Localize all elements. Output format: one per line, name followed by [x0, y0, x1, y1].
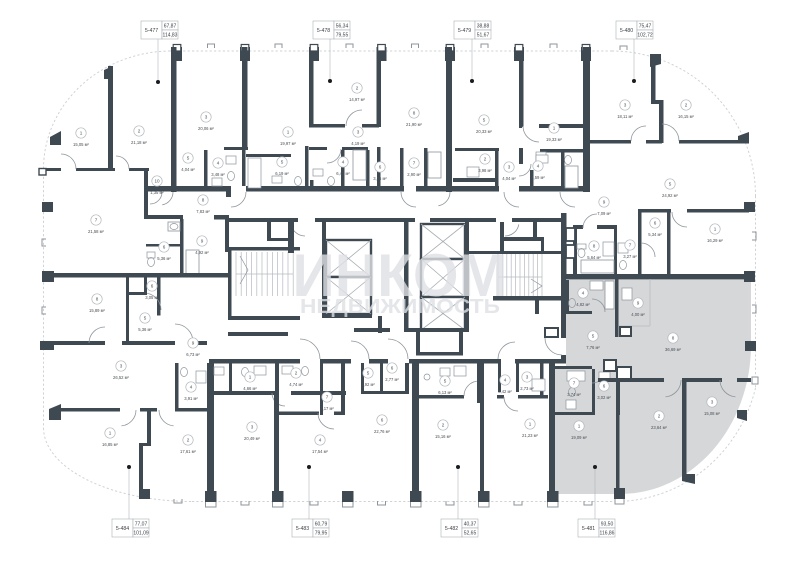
svg-text:2: 2 [295, 371, 298, 376]
svg-text:1: 1 [578, 424, 581, 429]
svg-text:4,66 м²: 4,66 м² [243, 386, 257, 391]
svg-text:5: 5 [669, 182, 672, 187]
svg-text:1: 1 [714, 227, 717, 232]
svg-text:17,61 м²: 17,61 м² [180, 449, 197, 454]
svg-text:4: 4 [190, 385, 193, 390]
svg-text:3: 3 [526, 375, 529, 380]
svg-text:2: 2 [685, 103, 688, 108]
svg-text:3: 3 [711, 400, 714, 405]
svg-text:3,98 м²: 3,98 м² [478, 168, 492, 173]
svg-text:7: 7 [629, 243, 632, 248]
svg-text:18,11 м²: 18,11 м² [617, 114, 633, 119]
svg-text:9: 9 [637, 301, 640, 306]
svg-text:15,89 м²: 15,89 м² [89, 308, 106, 313]
svg-text:4: 4 [537, 164, 540, 169]
svg-text:15,08 м²: 15,08 м² [704, 411, 721, 416]
svg-text:60,79: 60,79 [315, 522, 328, 528]
svg-text:56,34: 56,34 [336, 24, 349, 30]
svg-text:6,73 м²: 6,73 м² [186, 352, 200, 357]
svg-text:1: 1 [80, 131, 83, 136]
svg-text:4,92 м²: 4,92 м² [195, 250, 209, 255]
svg-text:10: 10 [154, 179, 160, 184]
svg-text:21,23 м²: 21,23 м² [522, 433, 539, 438]
svg-text:2,90 м²: 2,90 м² [407, 172, 421, 177]
svg-text:5-481: 5-481 [582, 526, 595, 532]
svg-text:5: 5 [592, 334, 595, 339]
svg-text:2,77 м²: 2,77 м² [385, 377, 399, 382]
svg-text:5-484: 5-484 [116, 526, 129, 532]
svg-text:3,27 м²: 3,27 м² [623, 254, 637, 259]
svg-text:40,37: 40,37 [464, 522, 477, 528]
svg-text:23,64 м²: 23,64 м² [651, 425, 668, 430]
svg-text:5: 5 [367, 371, 370, 376]
svg-text:7: 7 [413, 161, 416, 166]
svg-text:4: 4 [319, 438, 322, 443]
svg-text:3: 3 [251, 425, 254, 430]
svg-text:5: 5 [444, 379, 447, 384]
svg-text:8: 8 [413, 111, 416, 116]
svg-text:4,59 м²: 4,59 м² [531, 175, 545, 180]
svg-text:4,04 м²: 4,04 м² [181, 167, 195, 172]
svg-text:7: 7 [326, 395, 329, 400]
svg-text:93,50: 93,50 [601, 522, 614, 528]
svg-text:114,83: 114,83 [163, 33, 178, 39]
svg-text:9: 9 [603, 200, 606, 205]
svg-text:5-480: 5-480 [620, 28, 633, 34]
svg-text:НЕДВИЖИМОСТЬ: НЕДВИЖИМОСТЬ [300, 296, 500, 318]
svg-text:4,00 м²: 4,00 м² [631, 312, 645, 317]
svg-text:1: 1 [109, 431, 112, 436]
svg-text:24,92 м²: 24,92 м² [662, 193, 679, 198]
svg-text:21,58 м²: 21,58 м² [88, 229, 105, 234]
svg-text:20,49 м²: 20,49 м² [244, 436, 261, 441]
svg-text:14,97 м²: 14,97 м² [349, 97, 366, 102]
svg-text:16,15 м²: 16,15 м² [678, 114, 695, 119]
svg-text:5-477: 5-477 [145, 28, 158, 34]
svg-text:9: 9 [201, 239, 204, 244]
svg-text:52,65: 52,65 [464, 531, 477, 537]
svg-text:15,16 м²: 15,16 м² [435, 434, 452, 439]
svg-text:7: 7 [573, 381, 576, 386]
svg-text:2: 2 [356, 86, 359, 91]
svg-text:7,76 м²: 7,76 м² [586, 345, 600, 350]
svg-text:4: 4 [582, 291, 585, 296]
svg-text:5: 5 [483, 118, 486, 123]
svg-text:6,40 м²: 6,40 м² [336, 171, 350, 176]
svg-text:22,76 м²: 22,76 м² [374, 429, 391, 434]
svg-text:8: 8 [96, 297, 99, 302]
svg-text:5: 5 [187, 156, 190, 161]
svg-text:77,07: 77,07 [135, 522, 148, 528]
svg-text:2,73 м²: 2,73 м² [520, 386, 534, 391]
svg-text:6: 6 [151, 284, 154, 289]
svg-text:36,69 м²: 36,69 м² [665, 347, 682, 352]
svg-text:3: 3 [205, 115, 208, 120]
svg-text:6: 6 [381, 418, 384, 423]
svg-text:75,47: 75,47 [639, 24, 652, 30]
svg-text:6,19 м²: 6,19 м² [275, 171, 289, 176]
svg-text:2: 2 [658, 414, 661, 419]
svg-text:3,74 м²: 3,74 м² [567, 392, 581, 397]
svg-text:1: 1 [553, 126, 556, 131]
svg-text:17,54 м²: 17,54 м² [312, 449, 329, 454]
svg-text:1: 1 [287, 130, 290, 135]
svg-text:3,91 м²: 3,91 м² [184, 396, 198, 401]
svg-text:5-478: 5-478 [317, 28, 330, 34]
svg-text:26,52 м²: 26,52 м² [113, 375, 130, 380]
svg-text:19,97 м²: 19,97 м² [280, 141, 297, 146]
svg-text:8: 8 [672, 336, 675, 341]
svg-text:4: 4 [217, 161, 220, 166]
svg-text:20,06 м²: 20,06 м² [198, 126, 215, 131]
svg-text:21,18 м²: 21,18 м² [131, 140, 148, 145]
svg-text:4: 4 [342, 160, 345, 165]
svg-text:5-482: 5-482 [445, 526, 458, 532]
svg-text:7,09 м²: 7,09 м² [597, 211, 611, 216]
svg-text:3,85 м²: 3,85 м² [373, 176, 387, 181]
svg-text:20,33 м²: 20,33 м² [476, 129, 493, 134]
svg-text:4,04 м²: 4,04 м² [502, 176, 516, 181]
svg-text:1: 1 [529, 422, 532, 427]
svg-text:16,29 м²: 16,29 м² [707, 238, 724, 243]
svg-text:4: 4 [504, 378, 507, 383]
svg-text:4,19 м²: 4,19 м² [351, 141, 365, 146]
svg-text:1: 1 [249, 375, 252, 380]
svg-text:16,85 м²: 16,85 м² [102, 442, 119, 447]
svg-text:3: 3 [508, 165, 511, 170]
svg-text:8: 8 [202, 198, 205, 203]
svg-text:6: 6 [654, 221, 657, 226]
svg-text:67,87: 67,87 [164, 24, 177, 30]
svg-text:2: 2 [442, 423, 445, 428]
svg-text:79,55: 79,55 [336, 33, 349, 39]
svg-text:38,88: 38,88 [477, 24, 490, 30]
svg-text:3,02 м²: 3,02 м² [597, 395, 611, 400]
svg-text:4,74 м²: 4,74 м² [289, 382, 303, 387]
svg-text:4,82 м²: 4,82 м² [576, 302, 590, 307]
svg-text:6: 6 [391, 366, 394, 371]
svg-text:6: 6 [603, 384, 606, 389]
svg-text:5-483: 5-483 [296, 526, 309, 532]
svg-text:9: 9 [192, 341, 195, 346]
svg-text:5,36 м²: 5,36 м² [157, 256, 171, 261]
svg-text:1,35 м²: 1,35 м² [150, 190, 164, 195]
svg-text:19,09 м²: 19,09 м² [571, 435, 588, 440]
svg-text:21,90 м²: 21,90 м² [406, 122, 423, 127]
svg-text:79,95: 79,95 [315, 531, 328, 537]
svg-text:2: 2 [484, 157, 487, 162]
svg-text:2: 2 [138, 129, 141, 134]
svg-text:5: 5 [281, 160, 284, 165]
svg-text:51,67: 51,67 [477, 33, 490, 39]
svg-text:2: 2 [187, 438, 190, 443]
svg-text:3: 3 [357, 130, 360, 135]
svg-text:5,64 м²: 5,64 м² [587, 255, 601, 260]
svg-text:101,09: 101,09 [133, 531, 149, 537]
svg-text:5: 5 [144, 316, 147, 321]
svg-text:6: 6 [163, 245, 166, 250]
svg-text:7: 7 [95, 218, 98, 223]
svg-text:6: 6 [379, 165, 382, 170]
svg-text:3: 3 [624, 103, 627, 108]
svg-text:2,92 м²: 2,92 м² [361, 382, 375, 387]
svg-text:102,72: 102,72 [637, 33, 653, 39]
svg-text:7,83 м²: 7,83 м² [196, 209, 210, 214]
svg-text:3,42 м²: 3,42 м² [498, 389, 512, 394]
svg-text:3,05 м²: 3,05 м² [145, 295, 159, 300]
svg-text:5,34 м²: 5,34 м² [648, 232, 662, 237]
svg-text:3,48 м²: 3,48 м² [211, 172, 225, 177]
svg-text:5-479: 5-479 [458, 28, 471, 34]
svg-text:4,17 м²: 4,17 м² [320, 406, 334, 411]
svg-text:8: 8 [593, 244, 596, 249]
svg-text:19,33 м²: 19,33 м² [546, 137, 563, 142]
svg-text:3: 3 [120, 364, 123, 369]
svg-text:6,13 м²: 6,13 м² [438, 390, 452, 395]
svg-text:15,05 м²: 15,05 м² [73, 142, 90, 147]
svg-text:5,36 м²: 5,36 м² [138, 327, 152, 332]
svg-text:116,86: 116,86 [600, 531, 615, 537]
